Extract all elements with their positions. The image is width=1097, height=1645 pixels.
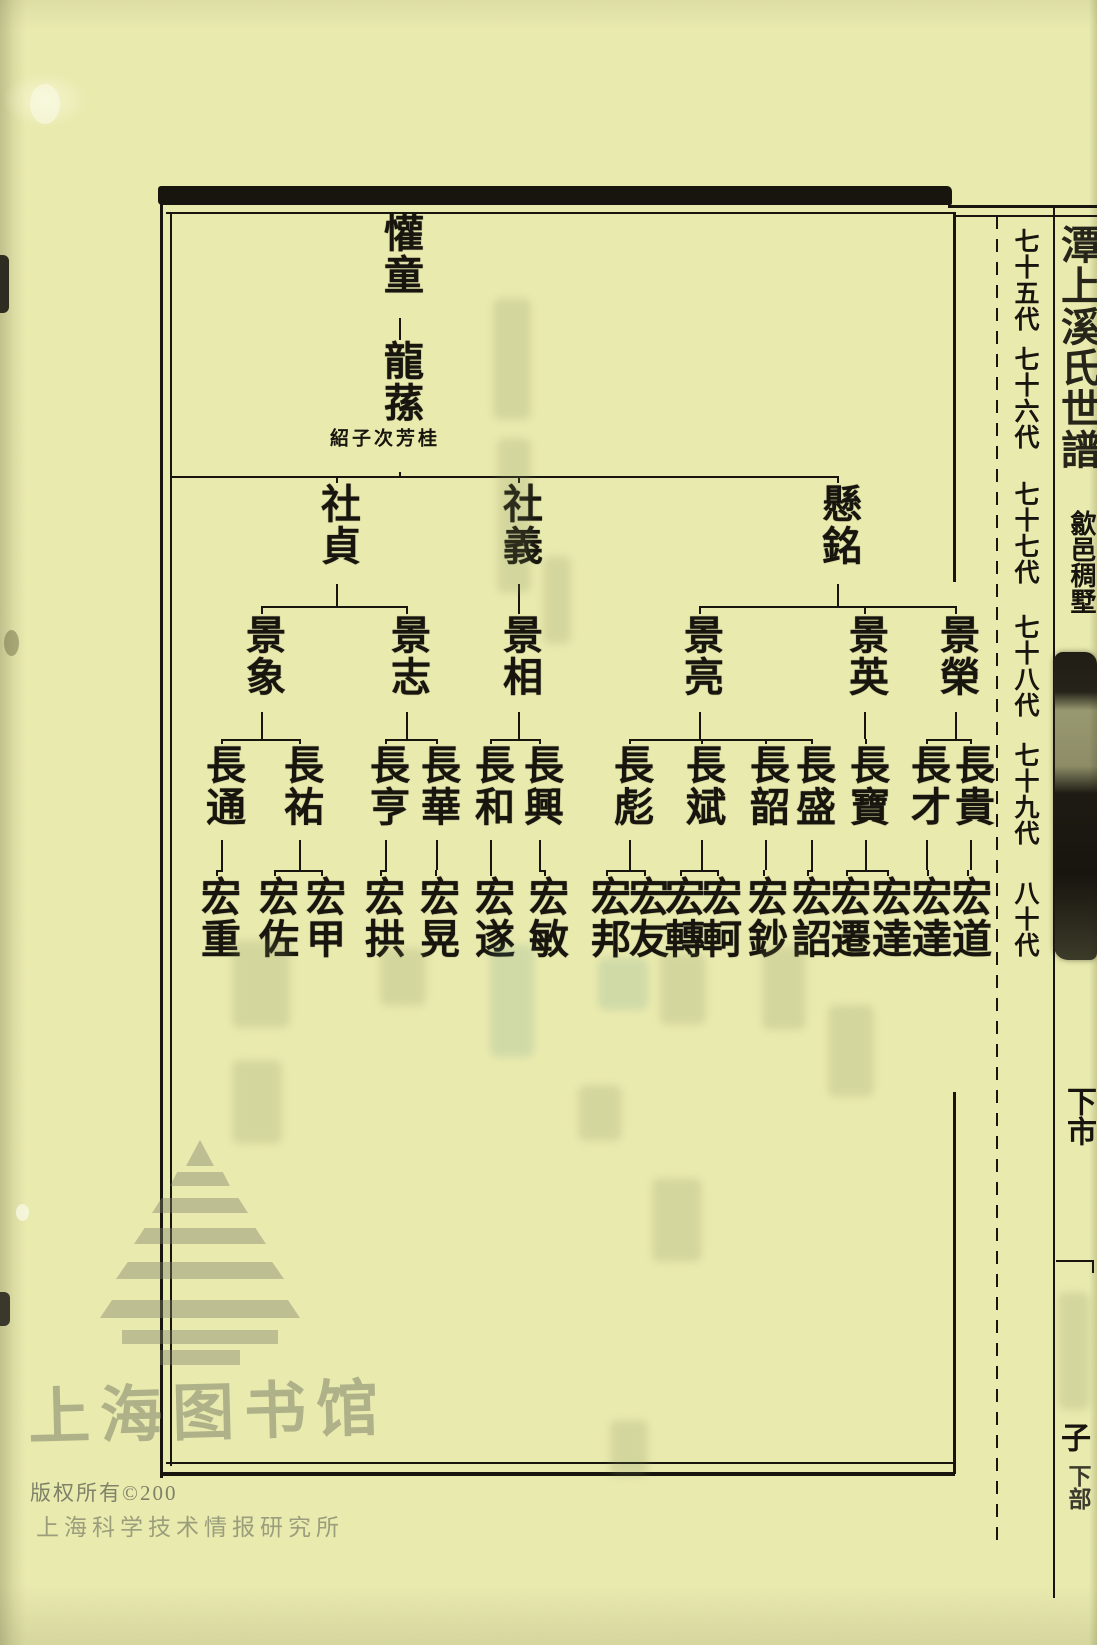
person-name: 宏達 bbox=[866, 876, 910, 960]
tree-node-hongda2: 宏達 bbox=[906, 876, 950, 960]
person-name: 懽童 bbox=[378, 212, 422, 296]
connector-line bbox=[399, 318, 401, 340]
stain bbox=[0, 1292, 10, 1326]
tree-node-hongqian: 宏遷 bbox=[825, 876, 869, 960]
connector-line bbox=[406, 712, 408, 739]
connector-line bbox=[544, 870, 546, 876]
copyright-text: 版权所有©200 bbox=[30, 1477, 177, 1507]
tree-node-changbao: 長寶 bbox=[844, 744, 888, 828]
tree-node-changgui: 長貴 bbox=[949, 744, 993, 828]
tree-node-jingying: 景英 bbox=[843, 614, 887, 698]
connector-line bbox=[811, 739, 813, 744]
connector-line bbox=[837, 476, 839, 483]
connector-line bbox=[864, 606, 866, 614]
connector-line bbox=[490, 739, 541, 741]
connector-line bbox=[680, 870, 682, 876]
connector-line bbox=[807, 870, 809, 876]
connector-line bbox=[490, 870, 492, 876]
connector-line bbox=[221, 739, 301, 741]
tree-node-changtong: 長通 bbox=[200, 744, 244, 828]
connector-line bbox=[967, 870, 969, 876]
person-name: 宏道 bbox=[946, 876, 990, 960]
person-name: 景榮 bbox=[934, 614, 978, 698]
bleed-through-mark bbox=[652, 1178, 702, 1262]
tree-node-jingzhi: 景志 bbox=[385, 614, 429, 698]
connector-line bbox=[765, 739, 767, 744]
tree-node-hongjia: 宏甲 bbox=[300, 876, 344, 960]
connector-line bbox=[261, 712, 263, 739]
connector-line bbox=[539, 840, 541, 870]
connector-line bbox=[274, 870, 276, 876]
tree-node-changbiao: 長彪 bbox=[608, 744, 652, 828]
connector-line bbox=[864, 712, 866, 739]
connector-line bbox=[606, 870, 608, 876]
person-name: 長貴 bbox=[949, 744, 993, 828]
connector-line bbox=[299, 840, 301, 870]
bleed-through-mark bbox=[578, 1085, 622, 1141]
connector-line bbox=[380, 870, 382, 876]
connector-line bbox=[765, 840, 767, 870]
person-name: 長斌 bbox=[680, 744, 724, 828]
connector-line bbox=[629, 739, 631, 744]
connector-line bbox=[846, 870, 848, 876]
connector-line bbox=[846, 870, 889, 872]
tree-node-hongdao: 宏道 bbox=[946, 876, 990, 960]
stain bbox=[16, 1204, 29, 1221]
bleed-through-mark bbox=[232, 1060, 282, 1144]
person-name: 宏晃 bbox=[414, 876, 458, 960]
connector-line bbox=[436, 739, 438, 744]
person-name: 長才 bbox=[905, 744, 949, 828]
person-name: 長華 bbox=[415, 744, 459, 828]
connector-line bbox=[701, 840, 703, 870]
tree-node-jingrong: 景榮 bbox=[934, 614, 978, 698]
tree-node-changhua: 長華 bbox=[415, 744, 459, 828]
tree-node-changhe: 長和 bbox=[469, 744, 513, 828]
person-name: 景英 bbox=[843, 614, 887, 698]
connector-line bbox=[261, 606, 263, 614]
connector-line bbox=[699, 606, 701, 614]
tree-node-honghuang: 宏晃 bbox=[414, 876, 458, 960]
bleed-through-mark bbox=[762, 946, 806, 1030]
person-name: 長寶 bbox=[844, 744, 888, 828]
connector-line bbox=[606, 870, 646, 872]
tree-node-changbin: 長斌 bbox=[680, 744, 724, 828]
person-name: 長彪 bbox=[608, 744, 652, 828]
connector-line bbox=[629, 739, 813, 741]
connector-line bbox=[955, 712, 957, 739]
connector-line bbox=[321, 870, 323, 876]
person-name: 宏甲 bbox=[300, 876, 344, 960]
connector-line bbox=[811, 840, 813, 870]
bleed-through-mark bbox=[497, 438, 531, 593]
person-name: 長盛 bbox=[790, 744, 834, 828]
connector-line bbox=[221, 840, 223, 870]
connector-line bbox=[518, 712, 520, 739]
person-name: 景象 bbox=[240, 614, 284, 698]
connector-line bbox=[274, 870, 323, 872]
connector-line bbox=[837, 584, 839, 606]
connector-line bbox=[926, 739, 972, 741]
connector-line bbox=[970, 840, 972, 870]
connector-line bbox=[926, 840, 928, 870]
connector-line bbox=[490, 739, 492, 744]
bleed-through-mark bbox=[380, 948, 426, 1006]
connector-line bbox=[221, 739, 223, 744]
bleed-through-mark bbox=[543, 556, 571, 644]
person-name: 景志 bbox=[385, 614, 429, 698]
person-name: 長通 bbox=[200, 744, 244, 828]
person-name: 長和 bbox=[469, 744, 513, 828]
bleed-through-mark bbox=[490, 945, 534, 1057]
tree-node-changshao: 長韶 bbox=[744, 744, 788, 828]
connector-line bbox=[701, 739, 703, 744]
node-annotation: 桂芳次 子紹 bbox=[390, 428, 436, 447]
tree-node-hongke: 宏軻 bbox=[696, 876, 740, 960]
tree-node-changyou: 長祐 bbox=[278, 744, 322, 828]
stain bbox=[30, 84, 60, 124]
connector-line bbox=[385, 739, 438, 741]
library-logo-pagoda bbox=[100, 1140, 300, 1365]
person-name: 龍蓀 bbox=[378, 340, 422, 424]
tree-node-changcai: 長才 bbox=[905, 744, 949, 828]
tree-node-jingliang: 景亮 bbox=[678, 614, 722, 698]
connector-line bbox=[336, 584, 338, 606]
library-name-watermark: 上海图书馆 bbox=[27, 1357, 389, 1456]
connector-line bbox=[970, 739, 972, 744]
bleed-through-mark bbox=[493, 298, 531, 420]
person-name: 長韶 bbox=[744, 744, 788, 828]
bleed-through-mark bbox=[610, 1420, 648, 1476]
person-name: 長亨 bbox=[364, 744, 408, 828]
tree-node-changheng: 長亨 bbox=[364, 744, 408, 828]
person-name: 長興 bbox=[518, 744, 562, 828]
tree-node-hongda: 宏達 bbox=[866, 876, 910, 960]
person-name: 懸銘 bbox=[816, 483, 860, 567]
connector-line bbox=[763, 870, 765, 876]
bleed-through-mark bbox=[232, 940, 290, 1028]
connector-line bbox=[299, 739, 301, 744]
connector-line bbox=[955, 606, 957, 614]
connector-line bbox=[436, 840, 438, 870]
connector-line bbox=[680, 870, 719, 872]
person-name: 宏軻 bbox=[696, 876, 740, 960]
tree-node-jingxiang2: 景相 bbox=[497, 614, 541, 698]
connector-line bbox=[406, 606, 408, 614]
person-name: 宏遷 bbox=[825, 876, 869, 960]
scanned-genealogy-page: { "page": {"paper_color": "#e9eaae", "in… bbox=[0, 0, 1097, 1645]
connector-line bbox=[699, 712, 701, 739]
connector-line bbox=[385, 739, 387, 744]
connector-line bbox=[717, 870, 719, 876]
tree-node-huantong: 懽童 bbox=[378, 212, 422, 296]
person-name: 景相 bbox=[497, 614, 541, 698]
connector-line bbox=[887, 870, 889, 876]
stain bbox=[4, 630, 19, 656]
connector-line bbox=[385, 840, 387, 870]
tree-node-longsun: 龍蓀桂芳次 子紹 bbox=[378, 340, 422, 424]
connector-line bbox=[490, 840, 492, 870]
connector-line bbox=[699, 606, 957, 608]
connector-line bbox=[926, 739, 928, 744]
connector-line bbox=[865, 840, 867, 870]
tree-node-changsheng: 長盛 bbox=[790, 744, 834, 828]
connector-line bbox=[865, 739, 867, 744]
connector-line bbox=[539, 739, 541, 744]
person-name: 宏達 bbox=[906, 876, 950, 960]
tree-node-shezhen: 社貞 bbox=[315, 483, 359, 567]
connector-line bbox=[261, 606, 408, 608]
connector-line bbox=[399, 472, 401, 476]
connector-line bbox=[435, 870, 437, 876]
bleed-through-mark bbox=[1058, 1292, 1090, 1410]
bleed-through-mark bbox=[598, 958, 648, 1010]
bleed-through-mark bbox=[828, 1005, 874, 1097]
tree-node-jingxiang: 景象 bbox=[240, 614, 284, 698]
institute-text: 上海科学技术情报研究所 bbox=[36, 1508, 344, 1542]
tree-node-xuanming: 懸銘 bbox=[816, 483, 860, 567]
person-name: 景亮 bbox=[678, 614, 722, 698]
tree-node-changxing: 長興 bbox=[518, 744, 562, 828]
connector-line bbox=[644, 870, 646, 876]
connector-line bbox=[216, 870, 218, 876]
connector-line bbox=[518, 606, 520, 614]
connector-line bbox=[629, 840, 631, 870]
stain bbox=[0, 255, 9, 313]
person-name: 社貞 bbox=[315, 483, 359, 567]
connector-line bbox=[927, 870, 929, 876]
person-name: 長祐 bbox=[278, 744, 322, 828]
connector-line bbox=[336, 476, 338, 483]
bleed-through-mark bbox=[660, 953, 706, 1025]
